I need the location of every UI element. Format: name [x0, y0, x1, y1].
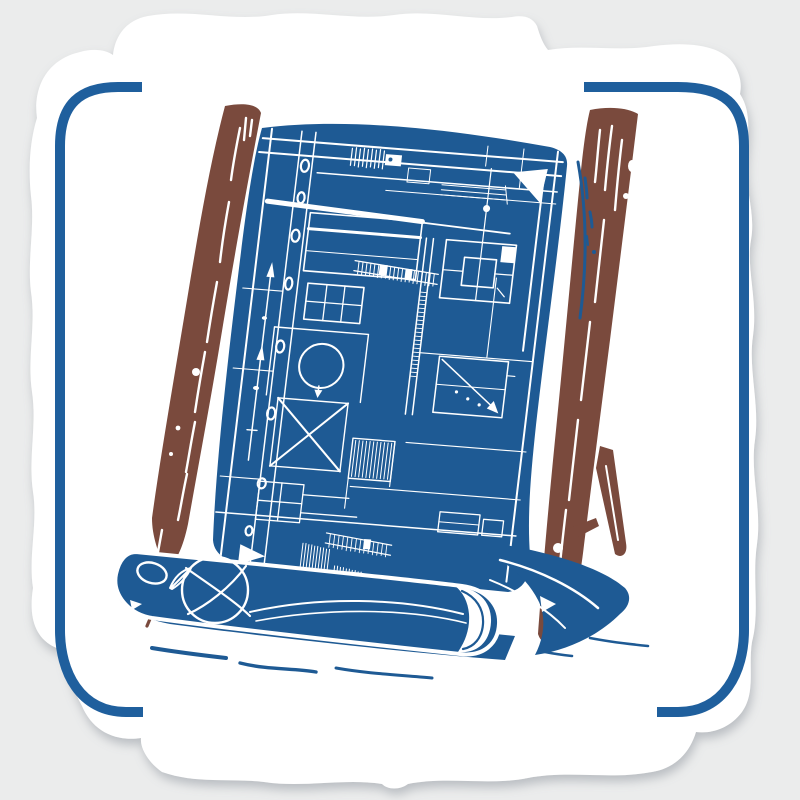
ruler2-filled-cell	[363, 539, 371, 550]
right-rail-hole-2	[623, 193, 629, 199]
ink-drip-3	[587, 236, 588, 245]
dimension-tick	[247, 430, 257, 431]
stair-square-tick	[507, 376, 515, 377]
inset-corner-block	[500, 246, 516, 263]
right-rail-hole-1	[628, 160, 636, 172]
ink-drip-dot	[592, 250, 596, 254]
top-label-block	[385, 154, 402, 166]
ruler1-filled-cell-1	[379, 265, 388, 276]
left-rail-knot-dot-3	[169, 452, 173, 456]
sticker-product-image: Die-cut sticker showing an architectural…	[0, 0, 800, 800]
sticker-illustration: Die-cut sticker showing an architectural…	[0, 0, 800, 800]
left-rail-knot-dot-1	[192, 368, 200, 376]
left-rail-knot-dot-2	[176, 426, 181, 431]
ruler1-filled-cell-2	[404, 269, 412, 280]
right-rail-hole-3	[553, 543, 563, 553]
